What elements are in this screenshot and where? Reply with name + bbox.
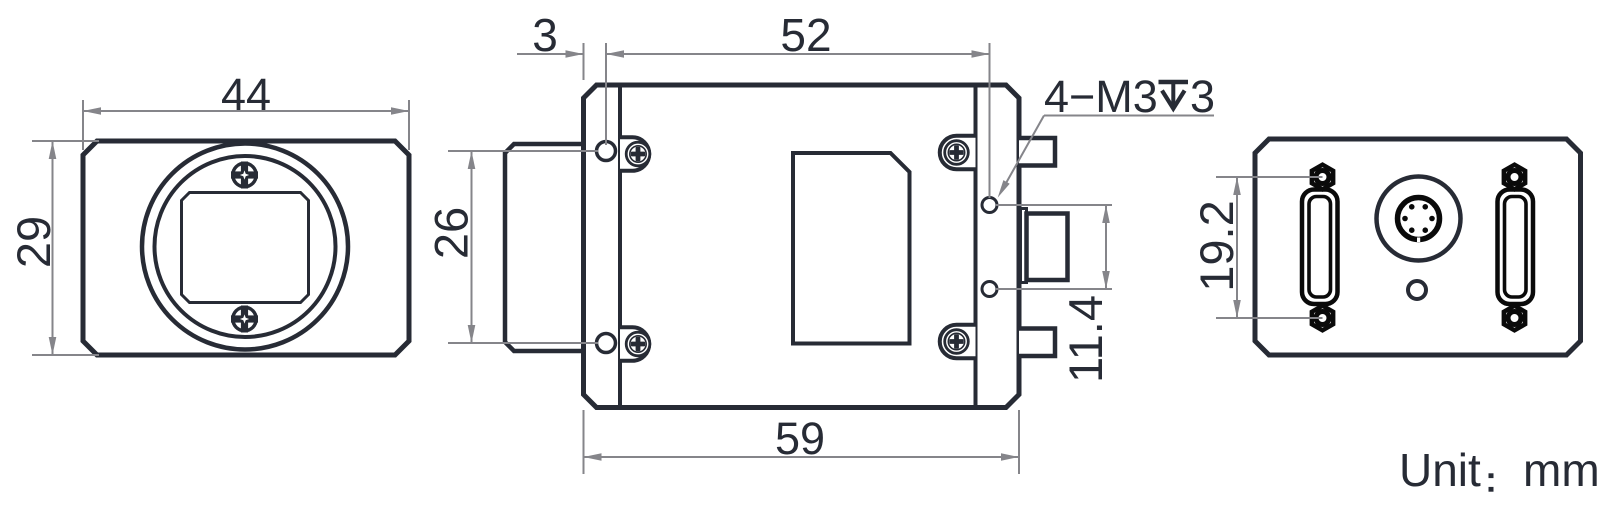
svg-text:3: 3 (1190, 71, 1215, 122)
svg-text:26: 26 (425, 207, 478, 259)
svg-text:29: 29 (7, 216, 60, 268)
svg-text:4−M3: 4−M3 (1044, 71, 1158, 122)
svg-text:52: 52 (780, 9, 831, 61)
svg-text:Unit: Unit (1399, 444, 1481, 496)
svg-text:11.4: 11.4 (1059, 295, 1112, 383)
svg-text:19.2: 19.2 (1190, 200, 1243, 291)
svg-text:44: 44 (221, 69, 271, 120)
svg-text:mm: mm (1523, 444, 1600, 496)
svg-text:59: 59 (775, 413, 825, 464)
svg-text:3: 3 (532, 9, 558, 61)
